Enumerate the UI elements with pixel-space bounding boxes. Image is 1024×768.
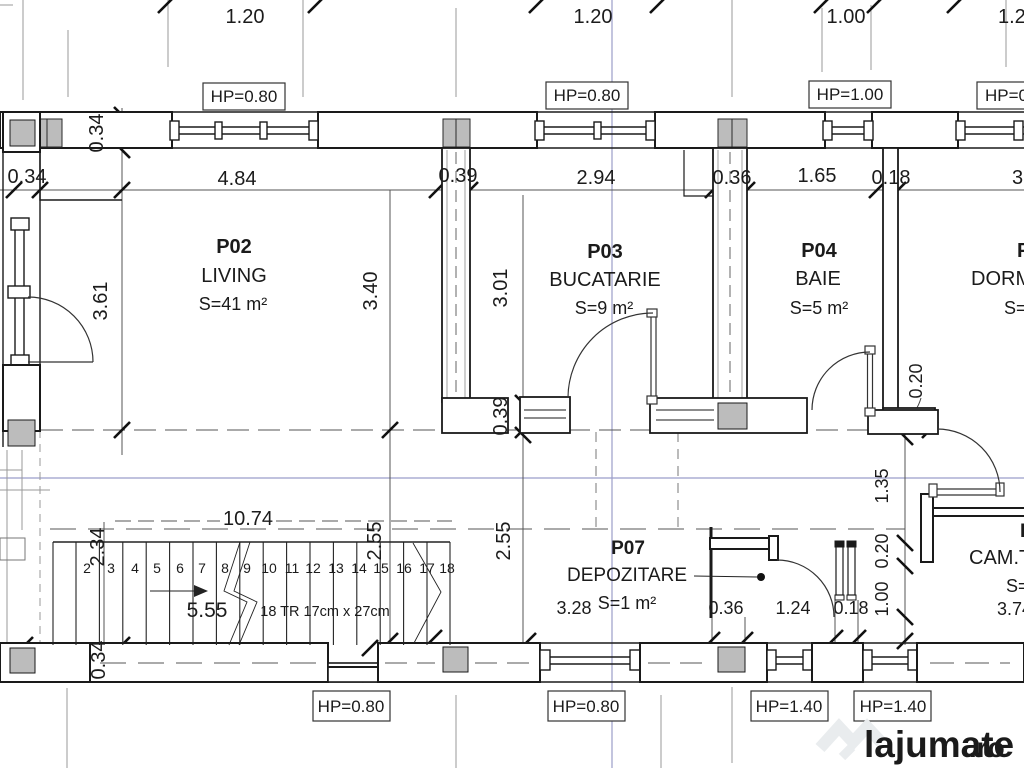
dim-039-v: 0.39	[490, 397, 512, 436]
dim-374: 3.74	[997, 599, 1024, 619]
room-camt-code: P	[1020, 521, 1024, 542]
stair-step-18: 18	[439, 560, 455, 576]
dimension-lines	[0, 108, 1024, 682]
dim-034-corner: 0.34	[86, 114, 108, 153]
hp-top-4: HP=0	[985, 86, 1024, 105]
stair-break-line	[224, 542, 247, 645]
stair-step-15: 15	[373, 560, 389, 576]
stair-step-14: 14	[351, 560, 367, 576]
terrace-door-arc	[28, 297, 93, 362]
interior-walls	[442, 148, 1024, 618]
room-p07-name: DEPOZITARE	[567, 565, 687, 586]
room-p04-code: P04	[801, 240, 837, 262]
stair-step-5: 5	[153, 560, 161, 576]
dim-135: 1.35	[872, 468, 892, 503]
room-p04-name: BAIE	[795, 268, 841, 290]
room-p03-code: P03	[587, 241, 623, 263]
hp-bottom-3: HP=1.40	[756, 697, 823, 716]
stair-step-16: 16	[396, 560, 412, 576]
dim-340: 3.40	[360, 272, 382, 311]
room-camt-name: CAM.T	[969, 547, 1024, 569]
dim-wall-294: 2.94	[577, 167, 616, 189]
floor-plan-svg: 1.201.201.001.20.344.840.392.940.361.650…	[0, 0, 1024, 768]
dim-020-baie: 0.20	[906, 363, 926, 398]
room-p05-name: DORM	[971, 268, 1024, 290]
hp-top-1: HP=0.80	[211, 87, 278, 106]
dim-wall-036: 0.36	[713, 167, 752, 189]
dim-255-a: 2.55	[364, 522, 386, 561]
dim-100: 1.00	[872, 581, 892, 616]
stair-step-9: 9	[243, 560, 251, 576]
doors	[28, 297, 1004, 617]
stair-step-12: 12	[305, 560, 321, 576]
room-p05-area: S=	[1004, 298, 1024, 318]
watermark-tld: .ro	[969, 732, 1005, 763]
floor-plan-page: 1.201.201.001.20.344.840.392.940.361.650…	[0, 0, 1024, 768]
dim-1074: 10.74	[223, 508, 273, 530]
dim-wall-034: 0.34	[8, 166, 47, 188]
hp-bottom-4: HP=1.40	[860, 697, 927, 716]
dim-361: 3.61	[90, 282, 112, 321]
dim-020-a: 0.20	[872, 533, 892, 568]
dim-wall-484: 4.84	[218, 168, 257, 190]
dim-top-4: 1.2	[998, 6, 1024, 28]
room-p02-name: LIVING	[201, 265, 267, 287]
room-p03-name: BUCATARIE	[549, 269, 661, 291]
stair-step-13: 13	[328, 560, 344, 576]
room-p03-area: S=9 m²	[575, 298, 634, 318]
dim-wall-018: 0.18	[872, 167, 911, 189]
stair-step-7: 7	[198, 560, 206, 576]
dim-wall-165: 1.65	[798, 165, 837, 187]
stair-step-4: 4	[131, 560, 139, 576]
dim-034-bl: 0.34	[88, 641, 110, 680]
stair-step-2: 2	[83, 560, 91, 576]
depozitare-leader	[694, 576, 757, 577]
hp-top-2: HP=0.80	[554, 86, 621, 105]
bath-door	[812, 346, 875, 416]
dim-top-2: 1.20	[574, 6, 613, 28]
dim-036-b: 0.36	[708, 598, 743, 618]
hp-top-3: HP=1.00	[817, 85, 884, 104]
dim-555: 5.55	[187, 599, 228, 622]
stair-step-10: 10	[261, 560, 277, 576]
room-p05-code: P	[1017, 240, 1024, 262]
room-p07-code: P07	[611, 538, 645, 559]
stair-step-6: 6	[176, 560, 184, 576]
bedroom-door	[929, 429, 1004, 497]
dim-301: 3.01	[490, 269, 512, 308]
room-p02-area: S=41 m²	[199, 294, 268, 314]
dim-255-b: 2.55	[493, 522, 515, 561]
dim-top-1: 1.20	[226, 6, 265, 28]
dim-wall-039: 0.39	[439, 165, 478, 187]
stair-step-3: 3	[107, 560, 115, 576]
room-camt-area: S=	[1006, 576, 1024, 596]
room-p07-area: S=1 m²	[598, 593, 657, 613]
stair-step-8: 8	[221, 560, 229, 576]
room-p02-code: P02	[216, 236, 252, 258]
dim-124: 1.24	[775, 598, 810, 618]
hp-bottom-1: HP=0.80	[318, 697, 385, 716]
stair-step-17: 17	[419, 560, 435, 576]
stair-step-11: 11	[285, 560, 300, 576]
dim-018-b: 0.18	[833, 598, 868, 618]
dim-328: 3.28	[556, 598, 591, 618]
room-p04-area: S=5 m²	[790, 298, 849, 318]
hp-bottom-2: HP=0.80	[553, 697, 620, 716]
dim-wall-3: 3.	[1012, 167, 1024, 189]
stair-note: 18 TR 17cm x 27cm	[260, 604, 389, 620]
dim-top-3: 1.00	[827, 6, 866, 28]
